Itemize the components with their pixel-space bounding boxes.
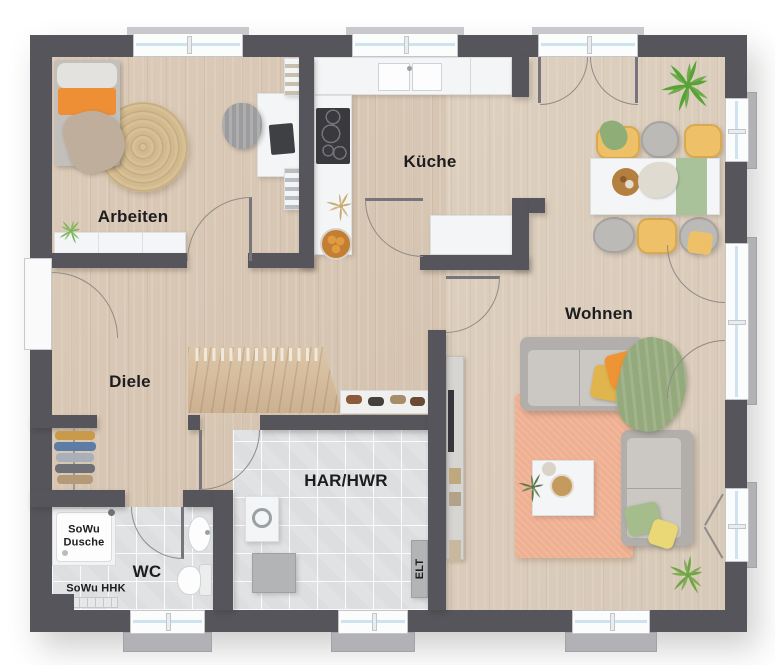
kitchen-sink-right <box>412 63 442 91</box>
wall-arbeiten-bottom-stub <box>248 253 314 268</box>
elt-label: ELT <box>414 559 426 580</box>
wall-wohnen-left <box>428 330 446 610</box>
cooktop <box>316 108 350 164</box>
window-sill <box>331 632 415 652</box>
shoes <box>410 397 425 406</box>
shoes <box>346 395 362 404</box>
dining-chair <box>593 217 635 253</box>
centerpiece-bowl <box>612 168 640 196</box>
shoes <box>390 395 406 404</box>
tv-sideboard <box>446 356 464 560</box>
wall-har-top <box>260 415 428 430</box>
duct-block <box>52 594 74 610</box>
coat-item <box>55 464 95 473</box>
sink-faucet <box>205 530 210 535</box>
table-bowl <box>550 474 574 498</box>
wall-wc-top-stub <box>183 490 213 507</box>
floor-plan: ELT SoWu Dusche SoWu HHK Arbeiten Küche … <box>0 0 775 665</box>
bed-pillow <box>57 63 117 88</box>
wall-wc-top <box>30 490 125 507</box>
desk-chair <box>222 103 262 149</box>
plant-fern-corner <box>654 54 722 116</box>
room-label-kueche: Küche <box>404 152 457 172</box>
decor-branches <box>324 186 358 226</box>
wall-arbeiten-bottom <box>52 253 187 268</box>
window-wohnen-bottom <box>572 610 650 634</box>
coat-item <box>55 431 95 440</box>
window-sill <box>123 632 212 652</box>
tv <box>448 390 454 452</box>
fridge-divider <box>470 58 471 94</box>
window-kueche <box>352 33 458 57</box>
terrace-door-right <box>725 243 749 400</box>
terrace-door-top <box>538 33 638 57</box>
dining-chair <box>641 121 679 158</box>
shower-head <box>108 509 115 516</box>
book-stack <box>449 540 461 562</box>
room-label-arbeiten: Arbeiten <box>98 207 169 227</box>
room-label-diele: Diele <box>109 372 151 392</box>
window-arbeiten <box>133 33 243 57</box>
coat-item <box>56 453 94 462</box>
coat-item <box>57 475 93 484</box>
window-sill <box>565 632 657 652</box>
room-label-wc: WC <box>133 562 162 582</box>
toilet-bowl <box>177 566 201 595</box>
shoes <box>368 397 384 406</box>
washer-door <box>252 508 272 528</box>
window-dining <box>725 98 749 162</box>
book-stack <box>449 492 461 506</box>
book-stack <box>449 468 461 484</box>
kitchen-island <box>430 215 516 255</box>
plant-sideboard <box>56 216 86 246</box>
room-label-wohnen: Wohnen <box>565 304 633 324</box>
towel-radiator <box>70 597 118 608</box>
entry-door <box>24 258 52 350</box>
appliance-box <box>252 553 296 593</box>
wall-arbeiten-kueche <box>299 57 314 268</box>
window-wohnen-right <box>725 488 749 562</box>
plant-floor <box>664 552 712 598</box>
wall-har-top-left-stub <box>188 415 200 430</box>
window-har <box>338 610 408 634</box>
coat-item <box>54 442 96 451</box>
table-runner <box>676 158 707 215</box>
window-wc <box>130 610 205 634</box>
shower-drain <box>62 550 68 556</box>
kitchen-faucet <box>407 66 412 71</box>
hhk-label: SoWu HHK <box>66 583 125 596</box>
plant-coffee-table <box>516 470 550 504</box>
wall-niche-top <box>30 415 97 428</box>
laptop <box>269 123 296 155</box>
staircase <box>188 347 342 413</box>
wall-kueche-right-upper <box>512 57 529 97</box>
wall-kueche-right-stub <box>529 198 545 213</box>
stair-open-risers <box>190 348 322 361</box>
wall-kueche-bottom <box>420 255 529 270</box>
room-label-har-hwr: HAR/HWR <box>304 471 388 491</box>
wall-wc-right <box>213 490 233 610</box>
fruit-bowl <box>320 228 352 260</box>
shower-label: SoWu Dusche <box>58 523 110 548</box>
dining-chair <box>684 124 722 158</box>
kitchen-sink-left <box>378 63 410 91</box>
